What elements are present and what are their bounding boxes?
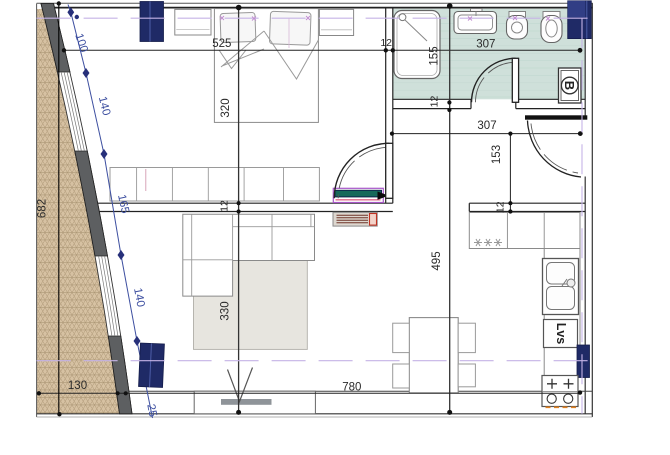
svg-text:Lvs: Lvs <box>554 323 568 345</box>
svg-text:130: 130 <box>68 380 87 392</box>
svg-text:525: 525 <box>212 38 231 50</box>
svg-text:12: 12 <box>219 200 231 212</box>
svg-text:153: 153 <box>491 145 503 164</box>
svg-text:495: 495 <box>431 251 443 270</box>
svg-text:307: 307 <box>476 39 495 51</box>
svg-text:12: 12 <box>380 37 392 49</box>
svg-text:B: B <box>562 81 577 90</box>
svg-text:12: 12 <box>495 201 507 213</box>
svg-text:330: 330 <box>220 301 232 320</box>
svg-text:320: 320 <box>220 98 232 117</box>
svg-text:155: 155 <box>429 46 441 65</box>
svg-text:682: 682 <box>36 199 48 218</box>
svg-text:25: 25 <box>144 403 158 418</box>
svg-text:307: 307 <box>477 120 496 132</box>
svg-text:12: 12 <box>428 96 440 108</box>
svg-text:780: 780 <box>342 381 361 393</box>
